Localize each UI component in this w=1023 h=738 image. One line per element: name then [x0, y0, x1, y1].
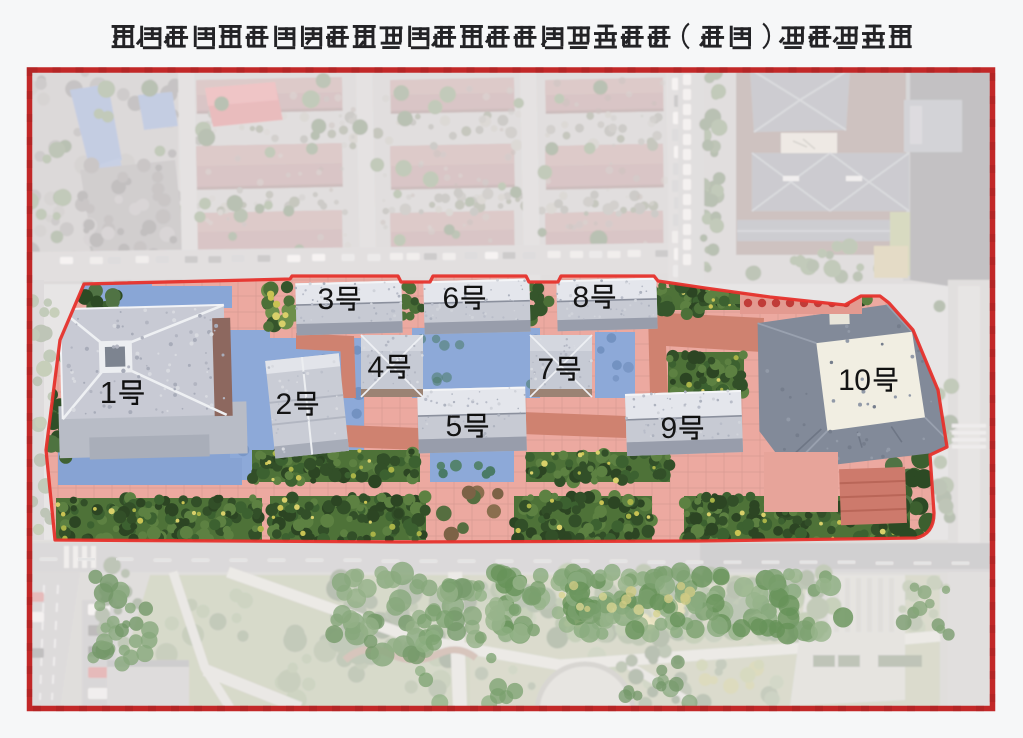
- svg-text:4: 4: [368, 351, 384, 384]
- svg-text:3: 3: [318, 283, 334, 316]
- svg-text:1: 1: [100, 375, 117, 410]
- svg-text:5: 5: [446, 410, 462, 443]
- svg-text:2: 2: [276, 388, 292, 421]
- svg-text:9: 9: [661, 412, 677, 445]
- svg-text:8: 8: [573, 281, 589, 314]
- svg-text:7: 7: [538, 353, 554, 386]
- svg-text:6: 6: [443, 282, 459, 315]
- svg-text:10: 10: [838, 364, 870, 397]
